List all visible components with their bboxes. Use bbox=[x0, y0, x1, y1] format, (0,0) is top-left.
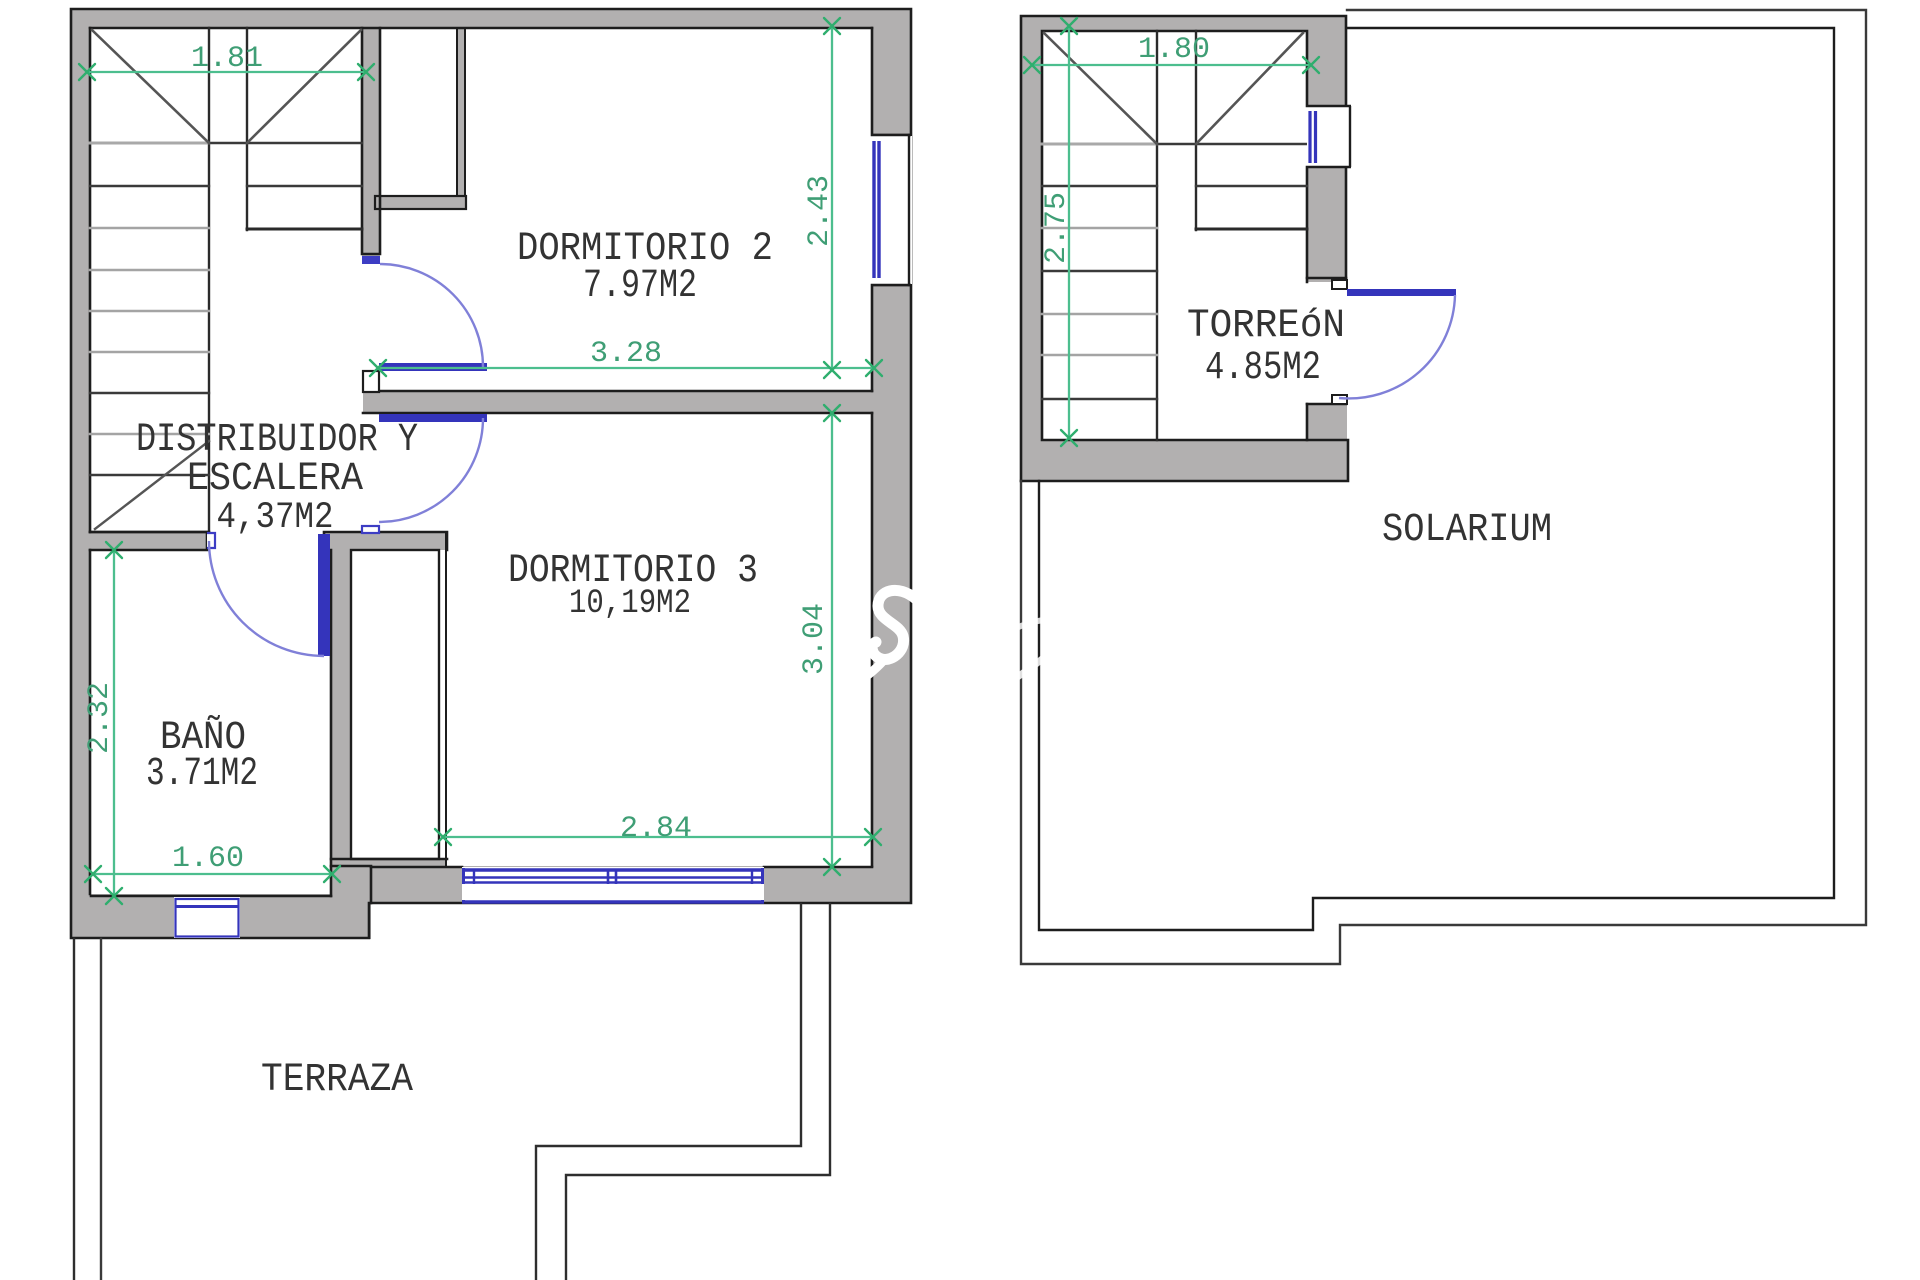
svg-text:SOLARIUM: SOLARIUM bbox=[1382, 508, 1552, 553]
svg-text:3.04: 3.04 bbox=[798, 603, 832, 675]
svg-text:1.81: 1.81 bbox=[191, 42, 263, 76]
svg-text:2.84: 2.84 bbox=[620, 812, 692, 846]
svg-text:4.85M2: 4.85M2 bbox=[1205, 346, 1321, 391]
svg-text:1.60: 1.60 bbox=[172, 842, 244, 876]
svg-text:4,37M2: 4,37M2 bbox=[217, 497, 334, 539]
svg-text:2.75: 2.75 bbox=[1040, 192, 1074, 264]
svg-text:2.32: 2.32 bbox=[83, 682, 117, 754]
svg-text:2.43: 2.43 bbox=[803, 175, 837, 247]
svg-text:7.97M2: 7.97M2 bbox=[583, 264, 697, 309]
svg-text:3.71M2: 3.71M2 bbox=[146, 752, 258, 797]
svg-text:ESCALERA: ESCALERA bbox=[187, 457, 363, 502]
svg-text:1.80: 1.80 bbox=[1138, 33, 1210, 67]
svg-text:TORREóN: TORREóN bbox=[1187, 304, 1345, 349]
svg-text:3.28: 3.28 bbox=[590, 337, 662, 371]
svg-text:10,19M2: 10,19M2 bbox=[569, 585, 691, 623]
svg-text:TERRAZA: TERRAZA bbox=[261, 1058, 413, 1103]
